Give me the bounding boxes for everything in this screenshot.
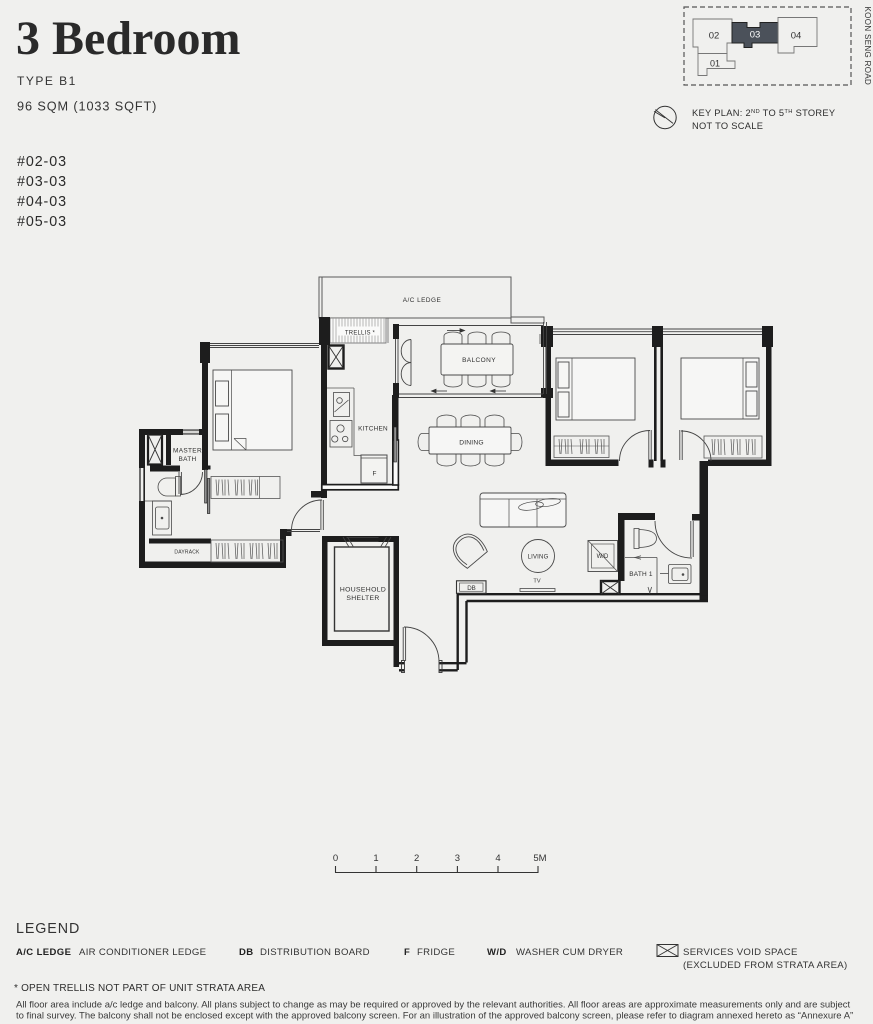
svg-text:NOT TO SCALE: NOT TO SCALE: [692, 121, 763, 131]
svg-text:SERVICES VOID SPACE: SERVICES VOID SPACE: [683, 947, 798, 958]
svg-text:A/C LEDGE: A/C LEDGE: [16, 947, 71, 958]
svg-text:0: 0: [333, 853, 338, 864]
svg-text:04: 04: [791, 31, 802, 42]
svg-text:02: 02: [709, 31, 720, 42]
svg-text:WASHER CUM DRYER: WASHER CUM DRYER: [516, 947, 623, 958]
svg-text:01: 01: [710, 59, 720, 69]
svg-text:TV: TV: [533, 579, 540, 585]
svg-text:MASTER: MASTER: [173, 448, 202, 455]
svg-text:HOUSEHOLD: HOUSEHOLD: [340, 587, 386, 594]
svg-text:KITCHEN: KITCHEN: [358, 426, 388, 433]
svg-text:#04-03: #04-03: [17, 194, 67, 210]
svg-text:DB: DB: [239, 947, 254, 958]
svg-text:LIVING: LIVING: [528, 555, 549, 561]
svg-text:03: 03: [750, 30, 761, 41]
svg-text:DISTRIBUTION BOARD: DISTRIBUTION BOARD: [260, 947, 370, 958]
svg-text:5M: 5M: [533, 853, 546, 864]
svg-text:F: F: [404, 947, 410, 958]
svg-text:W/D: W/D: [487, 947, 507, 958]
svg-text:F: F: [373, 471, 377, 478]
svg-text:#05-03: #05-03: [17, 214, 67, 230]
svg-text:LEGEND: LEGEND: [16, 921, 80, 937]
svg-text:KOON SENG ROAD: KOON SENG ROAD: [863, 7, 872, 86]
svg-text:BATH 1: BATH 1: [629, 571, 653, 578]
svg-text:* OPEN TRELLIS NOT PART OF UNI: * OPEN TRELLIS NOT PART OF UNIT STRATA A…: [14, 983, 265, 994]
svg-text:96 SQM (1033 SQFT): 96 SQM (1033 SQFT): [17, 100, 157, 114]
svg-text:DB: DB: [467, 585, 476, 592]
svg-text:3: 3: [455, 853, 460, 864]
svg-text:4: 4: [495, 853, 500, 864]
svg-text:TRELLIS *: TRELLIS *: [345, 331, 376, 337]
svg-text:DAYRACK: DAYRACK: [174, 550, 200, 556]
svg-text:(EXCLUDED FROM STRATA AREA): (EXCLUDED FROM STRATA AREA): [683, 960, 847, 971]
svg-text:FRIDGE: FRIDGE: [417, 947, 455, 958]
svg-text:#02-03: #02-03: [17, 154, 67, 170]
svg-text:BATH: BATH: [178, 456, 196, 463]
svg-text:3 Bedroom: 3 Bedroom: [16, 12, 240, 65]
svg-text:SHELTER: SHELTER: [346, 595, 379, 602]
svg-text:All floor area include a/c led: All floor area include a/c ledge and bal…: [16, 1000, 851, 1011]
svg-text:KEY PLAN: 2ND TO 5TH STOREY: KEY PLAN: 2ND TO 5TH STOREY: [692, 108, 835, 118]
svg-text:DINING: DINING: [459, 440, 484, 447]
svg-text:#03-03: #03-03: [17, 174, 67, 190]
svg-text:AIR CONDITIONER LEDGE: AIR CONDITIONER LEDGE: [79, 947, 206, 958]
svg-text:1: 1: [373, 853, 378, 864]
svg-text:to final survey. The balcony s: to final survey. The balcony shall not b…: [16, 1011, 853, 1022]
svg-text:A/C LEDGE: A/C LEDGE: [403, 297, 442, 304]
svg-text:BALCONY: BALCONY: [462, 357, 496, 364]
svg-text:W/D: W/D: [597, 554, 609, 560]
svg-text:2: 2: [414, 853, 419, 864]
svg-text:TYPE B1: TYPE B1: [17, 74, 77, 88]
